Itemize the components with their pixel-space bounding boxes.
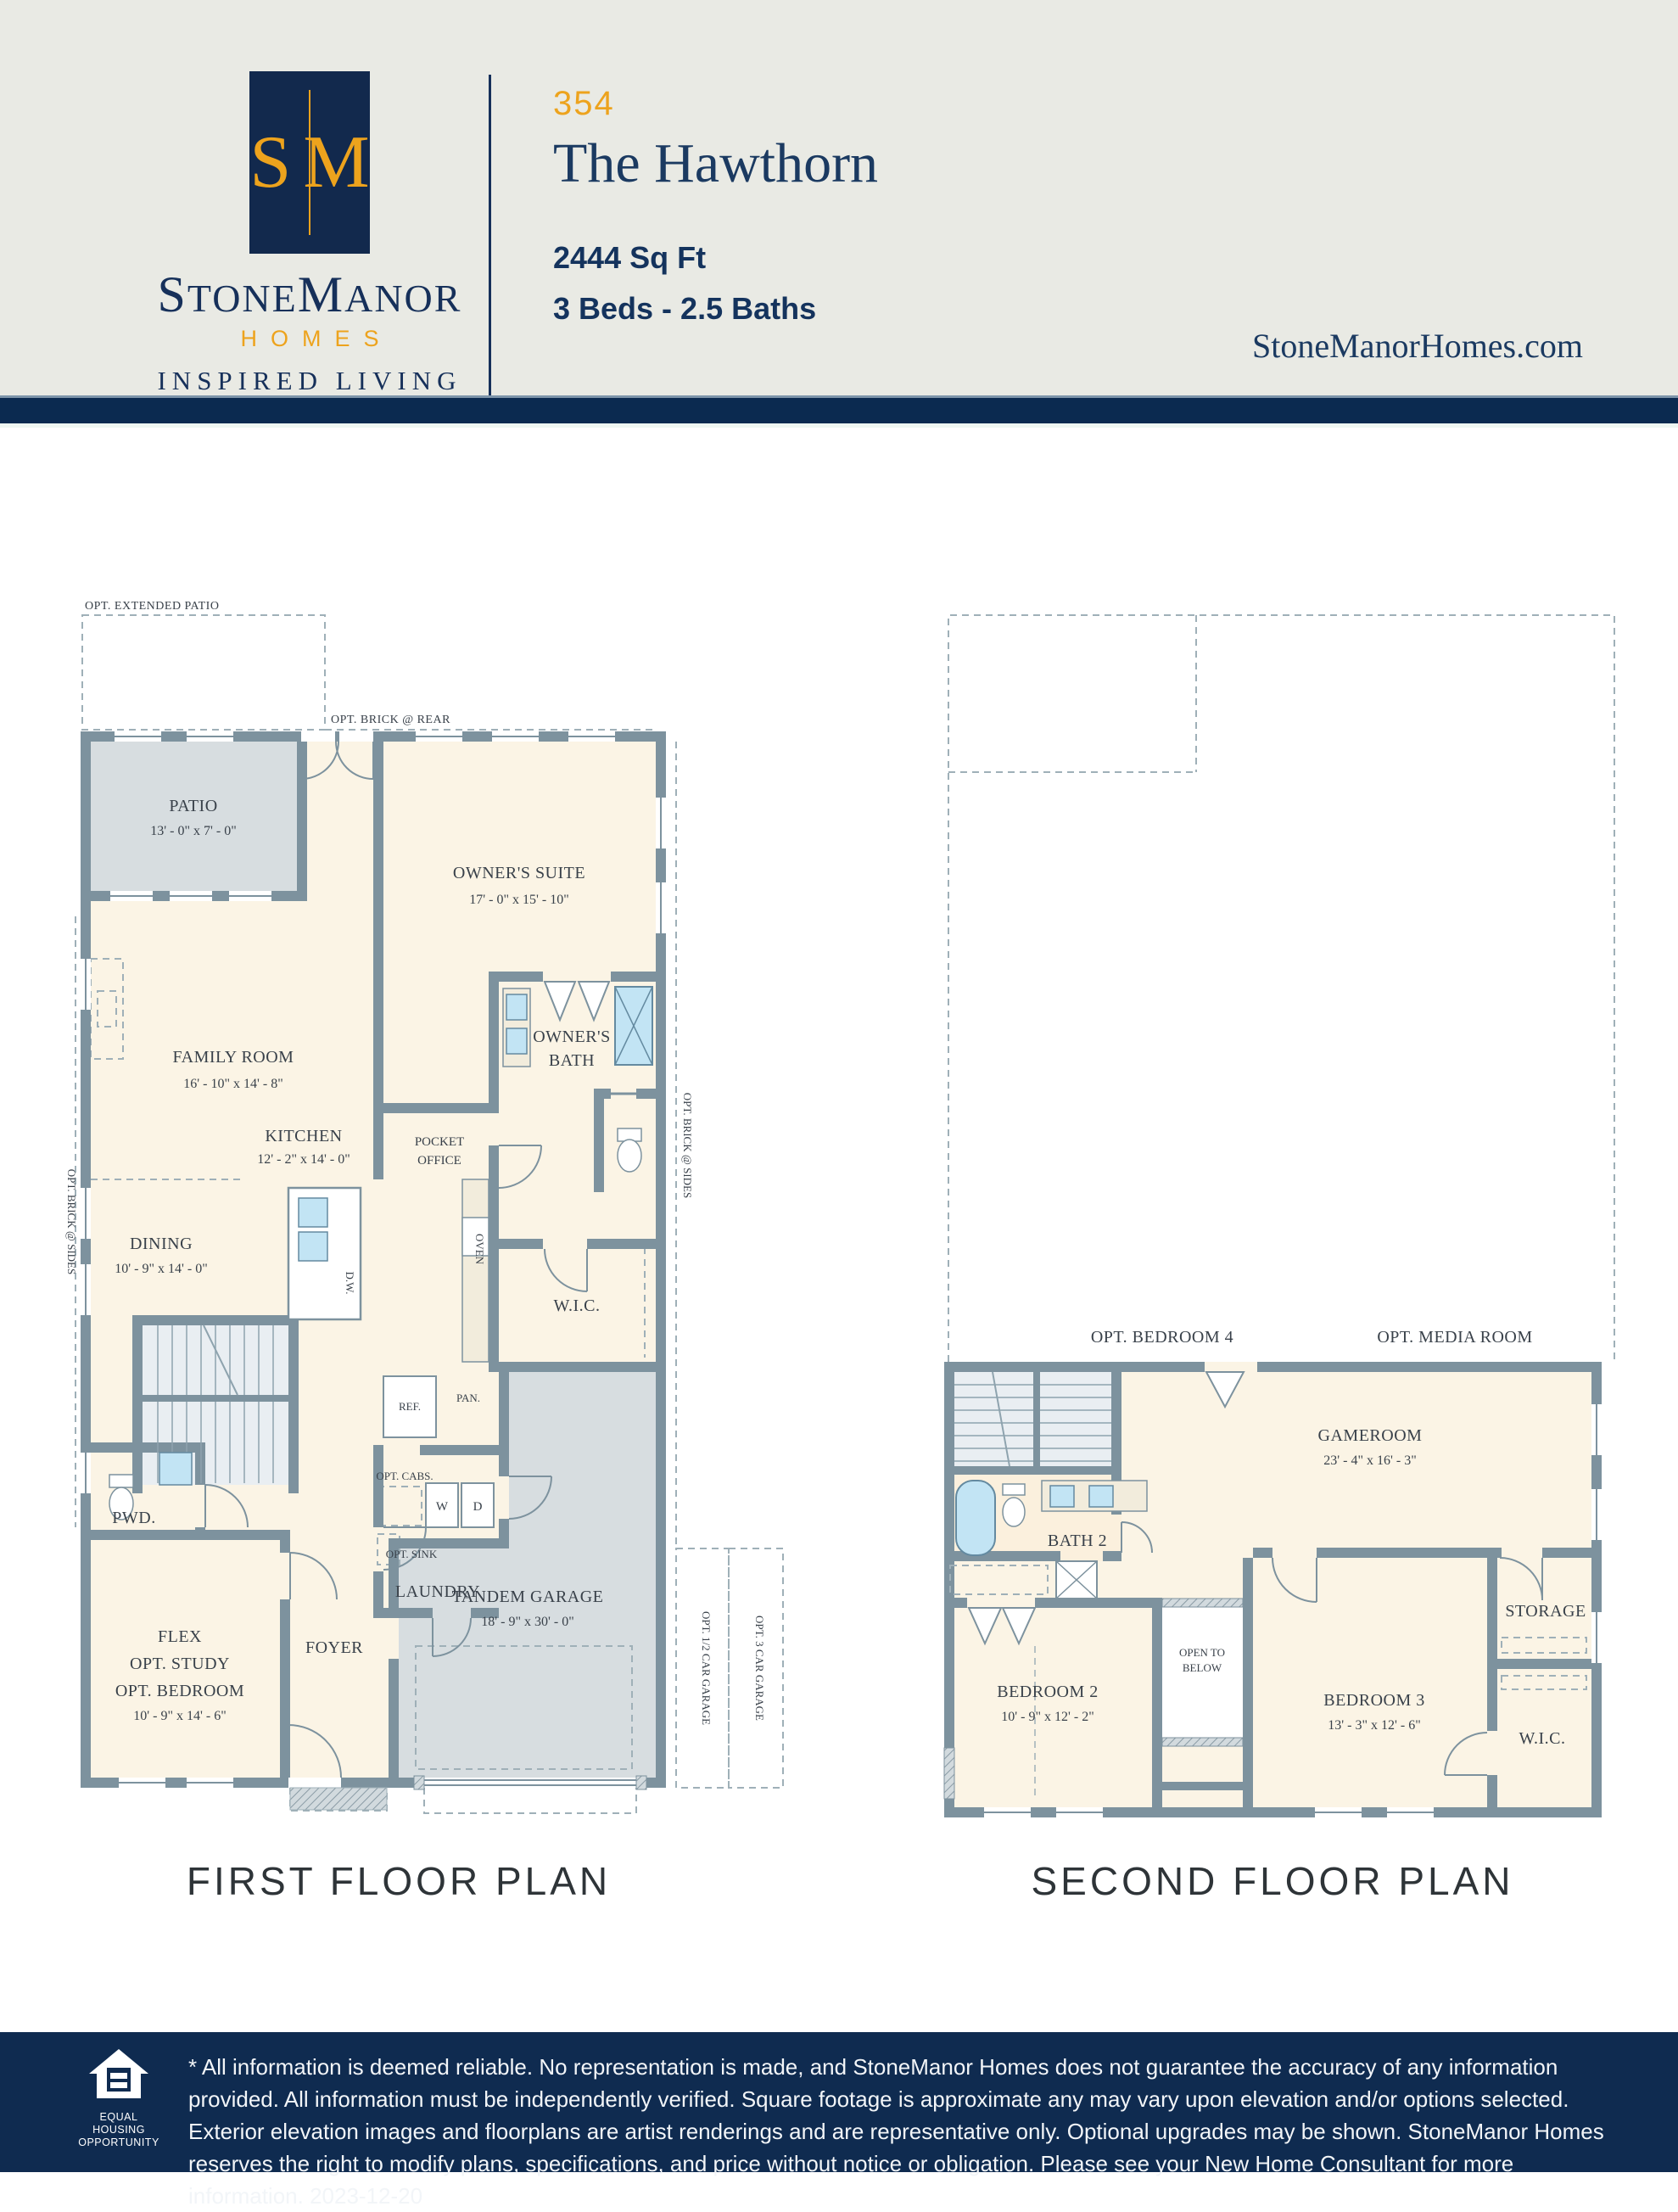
brand-tagline: INSPIRED LIVING [131, 366, 488, 396]
label-opt-half-garage: OPT. 1/2 CAR GARAGE [700, 1611, 713, 1725]
label-bedroom2: BEDROOM 2 [997, 1683, 1099, 1701]
label-washer: W [436, 1500, 449, 1514]
powder-sink [159, 1453, 192, 1485]
header-divider [489, 75, 491, 427]
label-owners-suite-dims: 17' - 0" x 15' - 10" [469, 893, 568, 907]
label-wic: W.I.C. [553, 1296, 600, 1315]
second-floor-plan: OPT. BEDROOM 4 OPT. MEDIA ROOM GAMEROOM … [908, 594, 1637, 1824]
brand-anor: ANOR [344, 277, 461, 320]
eho-line2: OPPORTUNITY [72, 2136, 165, 2149]
kitchen-counter [462, 1179, 489, 1362]
label-flex-bedroom: OPT. BEDROOM [115, 1682, 244, 1700]
shower [615, 987, 652, 1065]
label-owners-bath-2: BATH [549, 1051, 595, 1070]
disclaimer-text: * All information is deemed reliable. No… [188, 2051, 1630, 2212]
label-flex-study: OPT. STUDY [130, 1655, 230, 1673]
brand-tone: TONE [187, 277, 298, 320]
label-patio: PATIO [169, 797, 217, 815]
label-opt-extended-patio: OPT. EXTENDED PATIO [85, 600, 219, 613]
equal-housing-logo: EQUAL HOUSING OPPORTUNITY [72, 2047, 165, 2149]
label-dw: D.W. [344, 1272, 356, 1295]
eho-line1: EQUAL HOUSING [72, 2111, 165, 2136]
label-flex-dims: 10' - 9" x 14' - 6" [133, 1709, 226, 1723]
plan-title: The Hawthorn [553, 132, 878, 196]
label-gameroom: GAMEROOM [1318, 1426, 1423, 1445]
label-pwd: PWD. [112, 1509, 155, 1527]
label-pan: PAN. [456, 1392, 480, 1404]
label-opt-cabs: OPT. CABS. [376, 1470, 433, 1482]
label-dining: DINING [130, 1235, 193, 1253]
label-opt-3car-garage: OPT. 3 CAR GARAGE [753, 1616, 766, 1721]
label-bedroom2-dims: 10' - 9" x 12' - 2" [1001, 1710, 1093, 1724]
divider-band [0, 395, 1678, 428]
label-family-room-dims: 16' - 10" x 14' - 8" [183, 1077, 282, 1091]
footer: EQUAL HOUSING OPPORTUNITY * All informat… [0, 2032, 1678, 2172]
label-storage: STORAGE [1505, 1602, 1586, 1621]
label-foyer: FOYER [305, 1638, 363, 1657]
label-pocket-2: OFFICE [417, 1154, 461, 1168]
plan-identity: 354 The Hawthorn 2444 Sq Ft 3 Beds - 2.5… [553, 85, 878, 327]
floor-plans-section: OPT. EXTENDED PATIO OPT. BRICK @ REAR PA… [0, 428, 1678, 2032]
header: S M STONEMANOR HOMES INSPIRED LIVING 354… [0, 0, 1678, 395]
label-open-2: BELOW [1183, 1661, 1222, 1674]
label-wic2: W.I.C. [1519, 1729, 1565, 1748]
label-ref: REF. [399, 1400, 421, 1413]
label-opt-sink: OPT. SINK [386, 1548, 438, 1560]
first-floor-plan: OPT. EXTENDED PATIO OPT. BRICK @ REAR PA… [34, 594, 840, 1824]
sm-monogram-icon: S M [249, 71, 370, 254]
label-bedroom3-dims: 13' - 3" x 12' - 6" [1328, 1718, 1420, 1733]
label-dining-dims: 10' - 9" x 14' - 0" [115, 1262, 207, 1276]
website-link[interactable]: StoneManorHomes.com [1252, 326, 1583, 366]
label-pocket-1: POCKET [415, 1135, 464, 1149]
monogram-m: M [303, 126, 369, 200]
label-opt-brick-rear: OPT. BRICK @ REAR [331, 714, 450, 726]
label-bath2: BATH 2 [1048, 1532, 1107, 1550]
brand-m: M [298, 266, 344, 322]
label-oven: OVEN [473, 1234, 486, 1265]
label-kitchen: KITCHEN [265, 1127, 342, 1145]
brand-homes: HOMES [131, 326, 488, 352]
plan-number: 354 [553, 85, 878, 123]
second-floor-caption: SECOND FLOOR PLAN [908, 1858, 1637, 1904]
label-opt-media-room: OPT. MEDIA ROOM [1377, 1328, 1532, 1347]
label-garage: TANDEM GARAGE [452, 1588, 604, 1606]
label-gameroom-dims: 23' - 4" x 16' - 3" [1323, 1453, 1416, 1468]
label-garage-dims: 18' - 9" x 30' - 0" [481, 1615, 573, 1629]
brochure-page: S M STONEMANOR HOMES INSPIRED LIVING 354… [0, 0, 1678, 2172]
label-dryer: D [473, 1500, 483, 1514]
plan-beds-baths: 3 Beds - 2.5 Baths [553, 291, 878, 327]
label-owners-suite: OWNER'S SUITE [453, 864, 585, 882]
tub [956, 1481, 995, 1555]
second-floor-floors [944, 1362, 1602, 1817]
label-open-1: OPEN TO [1179, 1646, 1225, 1659]
toilet-bath2 [1003, 1484, 1025, 1526]
linen-closet [1056, 1561, 1097, 1599]
label-bedroom3: BEDROOM 3 [1323, 1691, 1425, 1710]
monogram-s: S [249, 126, 291, 200]
label-family-room: FAMILY ROOM [173, 1048, 294, 1067]
label-opt-brick-sides-left: OPT. BRICK @ SIDES [65, 1169, 78, 1274]
label-patio-dims: 13' - 0" x 7' - 0" [150, 824, 236, 838]
label-flex: FLEX [158, 1627, 202, 1646]
label-owners-bath-1: OWNER'S [533, 1028, 611, 1046]
plan-sqft: 2444 Sq Ft [553, 240, 878, 276]
label-kitchen-dims: 12' - 2" x 14' - 0" [257, 1152, 350, 1167]
label-opt-brick-sides-right: OPT. BRICK @ SIDES [681, 1093, 694, 1198]
brand-wordmark: STONEMANOR [131, 266, 488, 324]
first-floor-caption: FIRST FLOOR PLAN [34, 1858, 763, 1904]
brand-s: S [158, 266, 187, 322]
label-opt-bedroom4: OPT. BEDROOM 4 [1091, 1328, 1233, 1347]
brand-logo: S M STONEMANOR HOMES INSPIRED LIVING [131, 0, 488, 395]
toilet-owners [618, 1128, 641, 1172]
equal-housing-house-icon [87, 2047, 150, 2105]
second-floor-roof-outline [948, 615, 1614, 1362]
